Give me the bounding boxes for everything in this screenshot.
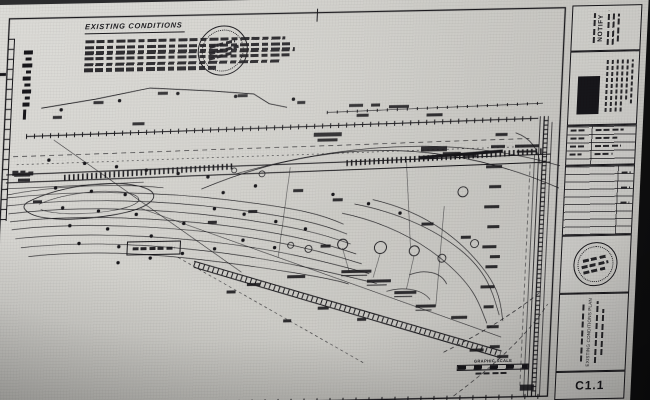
sheet-content: EXISTING CONDITIONS — [0, 2, 648, 400]
vertical-road — [503, 116, 552, 397]
big-arc-lines — [201, 143, 565, 197]
spur-track — [173, 251, 506, 368]
boxed-plan-note — [126, 240, 181, 255]
firm-text-smudge — [625, 59, 629, 99]
seal-text-smudge — [583, 254, 607, 262]
info-value-smudge — [594, 153, 612, 156]
revision-smudge — [621, 186, 630, 188]
info-value-smudge — [595, 145, 621, 148]
notify-text-smudge — [592, 13, 596, 43]
seal-text-smudge — [583, 267, 605, 274]
seal-box — [559, 234, 632, 293]
center-tick — [313, 9, 322, 22]
project-text-smudge — [594, 301, 599, 363]
project-title: EXISTING CONDITIONS PLAN — [585, 298, 593, 366]
notify-box: NOTIFY — [570, 4, 642, 51]
firm-logo-box — [567, 50, 640, 125]
contour-lines — [1, 177, 510, 333]
info-label-smudge — [569, 153, 581, 155]
info-label-smudge — [570, 145, 585, 147]
project-text-smudge — [600, 309, 605, 355]
general-notes-text — [84, 36, 294, 74]
paper-sheet: EXISTING CONDITIONS — [0, 0, 649, 400]
seal-text-smudge — [209, 52, 233, 61]
boundary-polyline — [41, 85, 288, 112]
pe-seal-stamp-icon — [572, 242, 618, 287]
notify-text-smudge — [611, 11, 615, 45]
plan-title: EXISTING CONDITIONS — [85, 20, 186, 34]
tree-symbols — [42, 87, 407, 266]
firm-text-smudge — [609, 60, 614, 112]
notify-text-smudge — [606, 11, 610, 45]
firm-logo-mark — [576, 76, 600, 114]
notify-heading: NOTIFY — [598, 14, 606, 42]
seal-text-smudge — [209, 39, 235, 48]
railroad-track-line — [26, 103, 543, 136]
note-line — [84, 66, 216, 72]
project-text-smudge — [580, 303, 585, 361]
firm-text-smudge — [614, 60, 619, 112]
revision-smudge — [620, 201, 629, 203]
boxed-note-smudge — [133, 246, 175, 250]
info-value-smudge — [596, 129, 624, 132]
firm-text-smudge — [619, 60, 624, 112]
seal-text-smudge — [581, 260, 608, 269]
info-value-smudge — [595, 137, 617, 140]
graphic-scale-bar — [457, 364, 529, 371]
graphic-scale: GRAPHIC SCALE — [456, 357, 529, 374]
drawing-info-table — [565, 124, 637, 165]
info-label-smudge — [571, 129, 587, 132]
notify-text-smudge — [616, 14, 620, 42]
revision-table — [562, 164, 635, 235]
tank-circles — [227, 163, 482, 267]
firm-text-smudge — [630, 59, 634, 103]
utility-dashed-lines — [13, 138, 530, 164]
info-label-smudge — [570, 137, 584, 139]
note-line — [84, 59, 280, 66]
photo-background: EXISTING CONDITIONS — [0, 0, 650, 400]
firm-text-smudge — [604, 60, 609, 112]
revision-smudge — [622, 171, 631, 173]
title-block-strip: NOTIFY — [553, 2, 643, 400]
sheet-number-box: C1.1 — [554, 371, 625, 400]
sheet-number: C1.1 — [575, 378, 605, 393]
seal-text-smudge — [209, 45, 239, 55]
site-plan-drawing: EXISTING CONDITIONS — [0, 4, 568, 400]
project-title-box: EXISTING CONDITIONS PLAN — [556, 292, 630, 371]
